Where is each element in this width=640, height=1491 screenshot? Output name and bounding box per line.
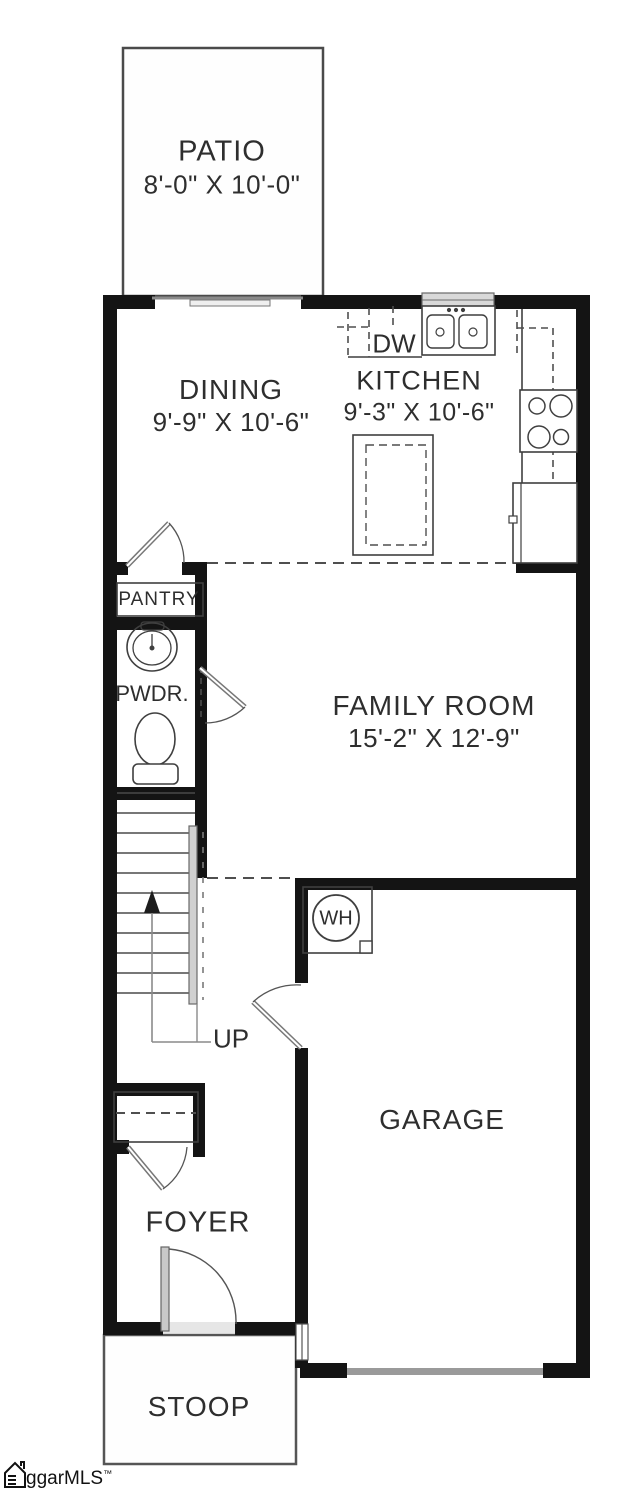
kitchen-name: KITCHEN	[343, 364, 494, 397]
dining-name: DINING	[153, 373, 310, 407]
foyer-label: FOYER	[146, 1205, 251, 1240]
stove	[520, 390, 577, 452]
powder-sink	[127, 622, 177, 671]
garage-side-window	[296, 1324, 308, 1360]
stairs	[117, 793, 195, 993]
dining-label: DINING 9'-9" X 10'-6"	[153, 373, 310, 439]
mls-text: ggarMLS	[26, 1468, 103, 1489]
kitchen-island	[353, 435, 433, 555]
kitchen-window	[422, 293, 494, 307]
kitchen-label: KITCHEN 9'-3" X 10'-6"	[343, 364, 494, 427]
family-room-label: FAMILY ROOM 15'-2" X 12'-9"	[333, 689, 536, 755]
stairs-up-label: UP	[213, 1024, 249, 1055]
floorplan-drawing	[0, 0, 640, 1491]
garage-door	[347, 1368, 543, 1375]
refrigerator	[509, 483, 577, 563]
patio-dims: 8'-0" X 10'-0"	[144, 170, 301, 202]
floorplan-canvas: PATIO 8'-0" X 10'-0" DINING 9'-9" X 10'-…	[0, 0, 640, 1491]
kitchen-sink	[422, 306, 495, 355]
house-logo-icon	[2, 1460, 28, 1490]
garage-label: GARAGE	[379, 1103, 505, 1137]
dishwasher-label: DW	[372, 329, 415, 360]
mls-watermark-text: ggarMLS™	[26, 1468, 112, 1490]
trademark-symbol: ™	[103, 1469, 112, 1479]
patio-name: PATIO	[144, 134, 301, 169]
kitchen-dims: 9'-3" X 10'-6"	[343, 397, 494, 428]
garage-name: GARAGE	[379, 1103, 505, 1137]
family-room-dims: 15'-2" X 12'-9"	[333, 723, 536, 755]
pantry-label: PANTRY	[118, 589, 199, 611]
toilet	[133, 713, 178, 784]
powder-label: PWDR.	[115, 681, 188, 707]
foyer-name: FOYER	[146, 1205, 251, 1240]
stoop-name: STOOP	[148, 1390, 251, 1424]
water-heater-label: WH	[319, 908, 352, 931]
sliding-door	[152, 298, 303, 306]
patio-label: PATIO 8'-0" X 10'-0"	[144, 134, 301, 201]
front-door	[161, 1247, 236, 1333]
foyer-closet	[114, 1092, 198, 1142]
family-room-name: FAMILY ROOM	[333, 689, 536, 723]
closet-door	[128, 1147, 187, 1189]
dining-dims: 9'-9" X 10'-6"	[153, 407, 310, 439]
garage-entry-door	[253, 985, 301, 1048]
mls-watermark: ggarMLS™	[2, 1460, 112, 1490]
pantry-door	[127, 523, 184, 566]
stoop-label: STOOP	[148, 1390, 251, 1424]
